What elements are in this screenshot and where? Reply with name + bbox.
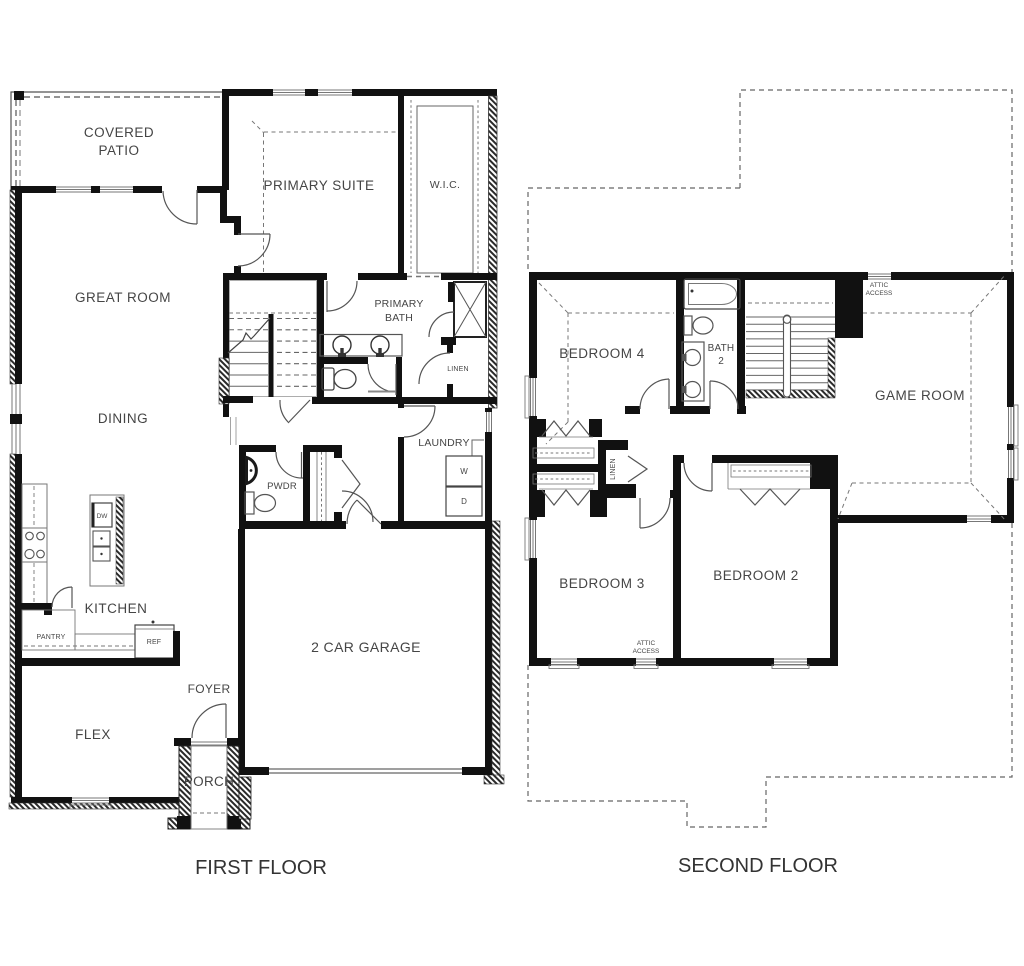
- svg-text:W: W: [460, 467, 468, 476]
- svg-text:DW: DW: [97, 513, 109, 520]
- svg-text:ACCESS: ACCESS: [633, 648, 660, 655]
- svg-text:PANTRY: PANTRY: [37, 634, 66, 641]
- svg-text:COVERED: COVERED: [84, 125, 154, 140]
- svg-text:PATIO: PATIO: [98, 143, 139, 158]
- svg-text:LINEN: LINEN: [447, 366, 469, 373]
- svg-text:PWDR: PWDR: [267, 481, 297, 492]
- svg-text:BATH: BATH: [385, 312, 413, 324]
- svg-text:GREAT ROOM: GREAT ROOM: [75, 290, 171, 305]
- svg-text:BEDROOM 4: BEDROOM 4: [559, 346, 645, 361]
- svg-text:KITCHEN: KITCHEN: [85, 601, 148, 616]
- svg-text:BEDROOM 3: BEDROOM 3: [559, 576, 645, 591]
- svg-text:ACCESS: ACCESS: [866, 290, 893, 297]
- svg-text:W.I.C.: W.I.C.: [430, 179, 460, 191]
- svg-text:BATH: BATH: [708, 343, 735, 354]
- svg-text:D: D: [461, 497, 467, 506]
- svg-text:REF: REF: [147, 639, 162, 646]
- svg-text:DINING: DINING: [98, 411, 148, 426]
- svg-text:2: 2: [718, 356, 724, 367]
- svg-text:BEDROOM 2: BEDROOM 2: [713, 568, 799, 583]
- svg-text:SECOND FLOOR: SECOND FLOOR: [678, 855, 838, 877]
- svg-text:ATTIC: ATTIC: [637, 640, 656, 647]
- svg-text:PORCH: PORCH: [184, 774, 234, 789]
- svg-text:2 CAR GARAGE: 2 CAR GARAGE: [311, 639, 421, 655]
- svg-text:LINEN: LINEN: [610, 458, 617, 480]
- svg-text:ATTIC: ATTIC: [870, 282, 889, 289]
- svg-text:FIRST FLOOR: FIRST FLOOR: [195, 857, 327, 879]
- svg-text:FOYER: FOYER: [188, 682, 231, 696]
- svg-text:PRIMARY: PRIMARY: [374, 298, 423, 310]
- svg-text:LAUNDRY: LAUNDRY: [418, 437, 469, 449]
- svg-text:GAME ROOM: GAME ROOM: [875, 388, 965, 403]
- svg-text:FLEX: FLEX: [75, 727, 111, 742]
- svg-text:PRIMARY SUITE: PRIMARY SUITE: [263, 178, 374, 193]
